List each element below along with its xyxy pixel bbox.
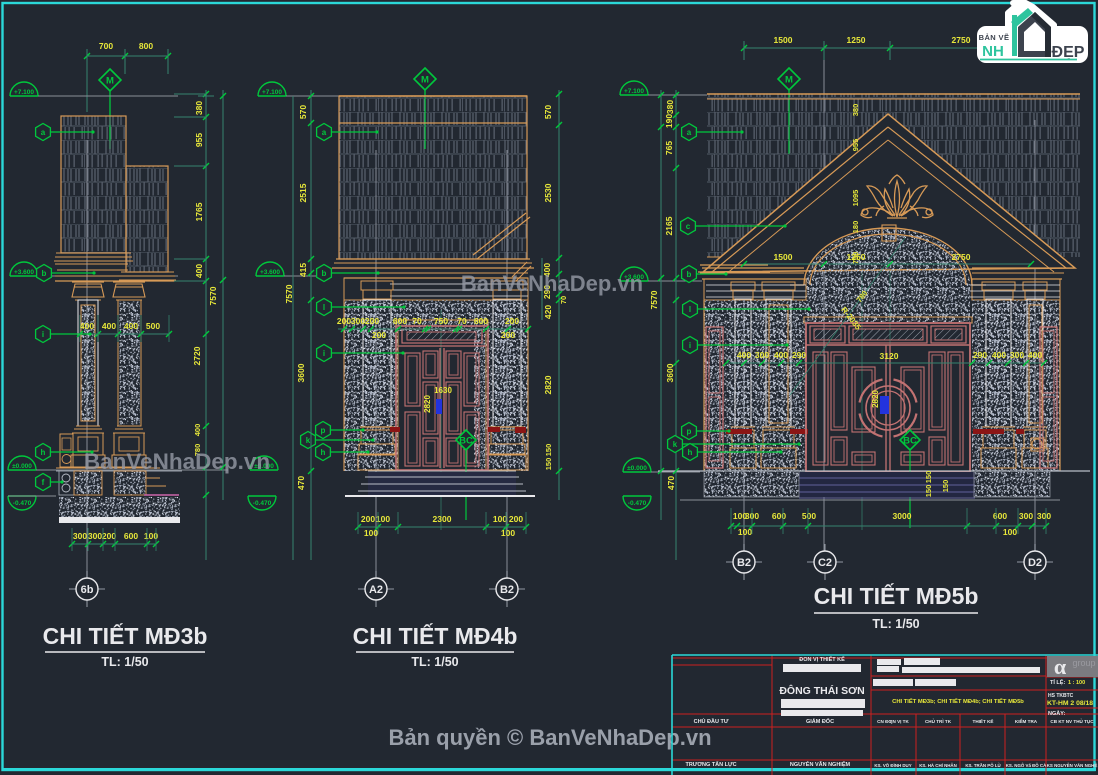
svg-text:a: a [41, 128, 46, 137]
svg-text:400: 400 [194, 264, 204, 278]
svg-text:70: 70 [412, 316, 422, 326]
svg-text:200: 200 [372, 330, 386, 340]
svg-text:2750: 2750 [952, 252, 971, 262]
svg-text:f: f [42, 478, 45, 487]
svg-text:200: 200 [505, 316, 519, 326]
svg-text:3000: 3000 [893, 511, 912, 521]
svg-text:500: 500 [802, 511, 816, 521]
svg-text:400: 400 [124, 321, 138, 331]
svg-text:600: 600 [772, 511, 786, 521]
svg-text:200: 200 [501, 330, 515, 340]
svg-text:200: 200 [509, 514, 523, 524]
svg-text:GIÁM ĐỐC: GIÁM ĐỐC [806, 718, 834, 725]
svg-text:l: l [689, 305, 691, 314]
svg-text:h: h [41, 448, 46, 457]
svg-text:+7.100: +7.100 [262, 89, 282, 96]
svg-text:NGÀY:: NGÀY: [1048, 710, 1065, 717]
svg-text:2515: 2515 [298, 183, 308, 202]
svg-text:765: 765 [664, 141, 674, 155]
svg-text:BC: BC [903, 435, 917, 446]
svg-text:300: 300 [1010, 350, 1024, 360]
svg-text:300: 300 [351, 316, 365, 326]
svg-text:300: 300 [1037, 511, 1051, 521]
svg-text:ĐÔNG THÁI SƠN: ĐÔNG THÁI SƠN [779, 684, 864, 697]
svg-text:Bản quyền © BanVeNhaDep.vn: Bản quyền © BanVeNhaDep.vn [388, 725, 711, 750]
svg-text:NH: NH [982, 43, 1004, 60]
svg-text:3600: 3600 [296, 363, 306, 382]
svg-text:1500: 1500 [774, 35, 793, 45]
svg-text:70: 70 [457, 316, 467, 326]
svg-text:BC: BC [459, 435, 473, 446]
svg-text:-0.470: -0.470 [628, 500, 647, 507]
svg-text:b: b [42, 269, 47, 278]
svg-text:group: group [1072, 658, 1095, 668]
svg-text:i: i [42, 330, 44, 339]
svg-text:-0.470: -0.470 [253, 500, 272, 507]
svg-text:380: 380 [665, 100, 675, 114]
svg-text:l: l [323, 303, 325, 312]
svg-text:M: M [106, 75, 114, 86]
svg-text:380: 380 [194, 101, 204, 115]
svg-text:CB KT NV THỦ TỤC: CB KT NV THỦ TỤC [1050, 718, 1094, 724]
svg-text:150: 150 [544, 458, 553, 471]
svg-text:1095: 1095 [851, 190, 860, 207]
svg-text:+7.100: +7.100 [624, 88, 644, 95]
svg-text:ĐON VỊ THIẾT KẾ: ĐON VỊ THIẾT KẾ [799, 656, 845, 663]
svg-text:2820: 2820 [423, 395, 432, 413]
svg-text:2820: 2820 [543, 375, 553, 394]
svg-text:h: h [688, 448, 693, 457]
svg-text:600: 600 [474, 316, 488, 326]
svg-text:M: M [421, 74, 429, 85]
svg-text:CHỦ ĐẦU TƯ: CHỦ ĐẦU TƯ [694, 718, 729, 725]
svg-text:3600: 3600 [665, 363, 675, 382]
svg-text:290: 290 [792, 350, 806, 360]
svg-text:BẢN VẼ: BẢN VẼ [979, 33, 1010, 42]
svg-text:BanVeNhaDep.vn: BanVeNhaDep.vn [84, 449, 270, 474]
svg-text:300: 300 [1019, 511, 1033, 521]
svg-text:2750: 2750 [952, 35, 971, 45]
svg-text:400: 400 [1028, 350, 1042, 360]
svg-text:NGUYỄN VĂN NGHIỆM: NGUYỄN VĂN NGHIỆM [790, 760, 851, 768]
svg-text:400: 400 [193, 424, 202, 437]
svg-text:±0.000: ±0.000 [12, 463, 32, 470]
svg-text:2300: 2300 [433, 514, 452, 524]
svg-text:180: 180 [851, 221, 860, 234]
svg-text:1250: 1250 [847, 252, 866, 262]
svg-text:2165: 2165 [664, 216, 674, 235]
svg-text:B2: B2 [737, 557, 751, 569]
svg-text:7570: 7570 [649, 290, 659, 309]
svg-text:p: p [687, 427, 692, 436]
svg-text:1250: 1250 [847, 35, 866, 45]
svg-text:100: 100 [364, 528, 378, 538]
svg-text:TL: 1/50: TL: 1/50 [101, 655, 148, 669]
svg-text:2720: 2720 [192, 346, 202, 365]
svg-text:415: 415 [298, 263, 308, 277]
svg-text:200: 200 [365, 316, 379, 326]
svg-text:CHI TIẾT MĐ4b: CHI TIẾT MĐ4b [353, 622, 518, 649]
svg-text:c: c [686, 222, 691, 231]
svg-text:k: k [673, 440, 678, 449]
svg-text:ĐẸP: ĐẸP [1052, 44, 1085, 61]
svg-text:+3.600: +3.600 [260, 269, 280, 276]
svg-text:570: 570 [543, 105, 553, 119]
svg-text:600: 600 [393, 316, 407, 326]
svg-text:CN ĐƢN VỊ TK: CN ĐƢN VỊ TK [877, 719, 909, 724]
svg-text:a: a [322, 128, 327, 137]
svg-text:955: 955 [194, 133, 204, 147]
svg-text:6b: 6b [81, 584, 94, 596]
svg-text:BanVeNhaDep.vn: BanVeNhaDep.vn [461, 271, 643, 296]
svg-text:100: 100 [738, 527, 752, 537]
svg-text:500: 500 [146, 321, 160, 331]
svg-text:TỈ LỆ:: TỈ LỆ: [1050, 678, 1065, 686]
svg-text:i: i [689, 341, 691, 350]
svg-text:TL: 1/50: TL: 1/50 [411, 655, 458, 669]
svg-text:A2: A2 [369, 584, 383, 596]
svg-text:KS. HÀ CHÍ NHÂN: KS. HÀ CHÍ NHÂN [919, 763, 957, 768]
svg-text:200: 200 [337, 316, 351, 326]
svg-text:+7.100: +7.100 [14, 89, 34, 96]
svg-text:3120: 3120 [880, 351, 899, 361]
svg-text:400: 400 [737, 350, 751, 360]
svg-text:C2: C2 [818, 557, 832, 569]
svg-text:380: 380 [851, 104, 860, 117]
svg-text:7570: 7570 [208, 286, 218, 305]
svg-text:150: 150 [941, 480, 950, 493]
svg-text:h: h [321, 448, 326, 457]
svg-text:KS. VÕ ĐÌNH DUY: KS. VÕ ĐÌNH DUY [874, 763, 911, 768]
svg-text:1 : 100: 1 : 100 [1068, 680, 1085, 686]
svg-text:p: p [321, 426, 326, 435]
svg-text:300: 300 [73, 531, 87, 541]
svg-text:b: b [322, 269, 327, 278]
svg-text:470: 470 [666, 476, 676, 490]
svg-text:750: 750 [434, 316, 448, 326]
svg-text:TL: 1/50: TL: 1/50 [872, 617, 919, 631]
svg-text:190: 190 [664, 114, 674, 128]
svg-text:300: 300 [88, 531, 102, 541]
svg-text:-0.470: -0.470 [13, 500, 32, 507]
svg-text:M: M [785, 74, 793, 85]
svg-text:KT-HM 2 08/18: KT-HM 2 08/18 [1047, 700, 1093, 707]
svg-text:600: 600 [993, 511, 1007, 521]
svg-text:CHI TIẾT MĐ5b: CHI TIẾT MĐ5b [814, 582, 979, 609]
svg-text:CHỦ TRÌ TK: CHỦ TRÌ TK [925, 717, 952, 724]
svg-text:TRƯƠNG TẤN LỰC: TRƯƠNG TẤN LỰC [685, 761, 736, 768]
svg-text:600: 600 [124, 531, 138, 541]
svg-text:CHI TIẾT MĐ3b; CHI TIẾT MĐ4b;: CHI TIẾT MĐ3b; CHI TIẾT MĐ4b; CHI TIẾT M… [892, 698, 1024, 705]
svg-text:300: 300 [755, 350, 769, 360]
svg-text:α: α [1054, 654, 1067, 679]
svg-text:290: 290 [973, 350, 987, 360]
svg-text:KS NGUYỄN VĂN NGHỆ: KS NGUYỄN VĂN NGHỆ [1047, 763, 1098, 768]
svg-text:570: 570 [298, 105, 308, 119]
svg-text:KS. TRẦN PÔ LÙ: KS. TRẦN PÔ LÙ [965, 763, 1000, 768]
svg-text:a: a [687, 128, 692, 137]
svg-text:CHI TIẾT MĐ3b: CHI TIẾT MĐ3b [43, 622, 208, 649]
svg-text:i: i [323, 349, 325, 358]
svg-text:100: 100 [501, 528, 515, 538]
svg-text:KIỂM TRA: KIỂM TRA [1015, 718, 1038, 724]
svg-text:400: 400 [80, 321, 94, 331]
svg-text:420: 420 [543, 305, 553, 319]
svg-text:700: 700 [99, 41, 113, 51]
svg-text:D2: D2 [1028, 557, 1042, 569]
svg-text:400: 400 [774, 350, 788, 360]
svg-text:k: k [306, 436, 311, 445]
svg-text:1630: 1630 [434, 386, 452, 395]
svg-text:400: 400 [102, 321, 116, 331]
svg-text:100: 100 [493, 514, 507, 524]
svg-text:1500: 1500 [774, 252, 793, 262]
svg-text:400: 400 [992, 350, 1006, 360]
svg-text:2820: 2820 [871, 390, 880, 408]
svg-text:+3.600: +3.600 [14, 269, 34, 276]
svg-text:HS TKBTC: HS TKBTC [1048, 693, 1074, 699]
svg-text:KS. NGÔ Vă ĐÔ CÀ: KS. NGÔ Vă ĐÔ CÀ [1006, 763, 1047, 768]
svg-text:THIẾT KẾ: THIẾT KẾ [973, 718, 994, 724]
svg-text:150: 150 [544, 444, 553, 457]
svg-text:100: 100 [1003, 527, 1017, 537]
svg-text:2530: 2530 [543, 183, 553, 202]
svg-text:150: 150 [924, 471, 933, 484]
svg-text:70: 70 [559, 296, 568, 304]
svg-text:800: 800 [139, 41, 153, 51]
svg-text:470: 470 [296, 476, 306, 490]
svg-text:200: 200 [361, 514, 375, 524]
svg-text:200: 200 [102, 531, 116, 541]
svg-text:150: 150 [924, 485, 933, 498]
svg-text:B2: B2 [500, 584, 514, 596]
svg-text:955: 955 [851, 139, 860, 152]
svg-text:±0.000: ±0.000 [627, 465, 647, 472]
svg-text:b: b [687, 270, 692, 279]
svg-text:1765: 1765 [194, 202, 204, 221]
